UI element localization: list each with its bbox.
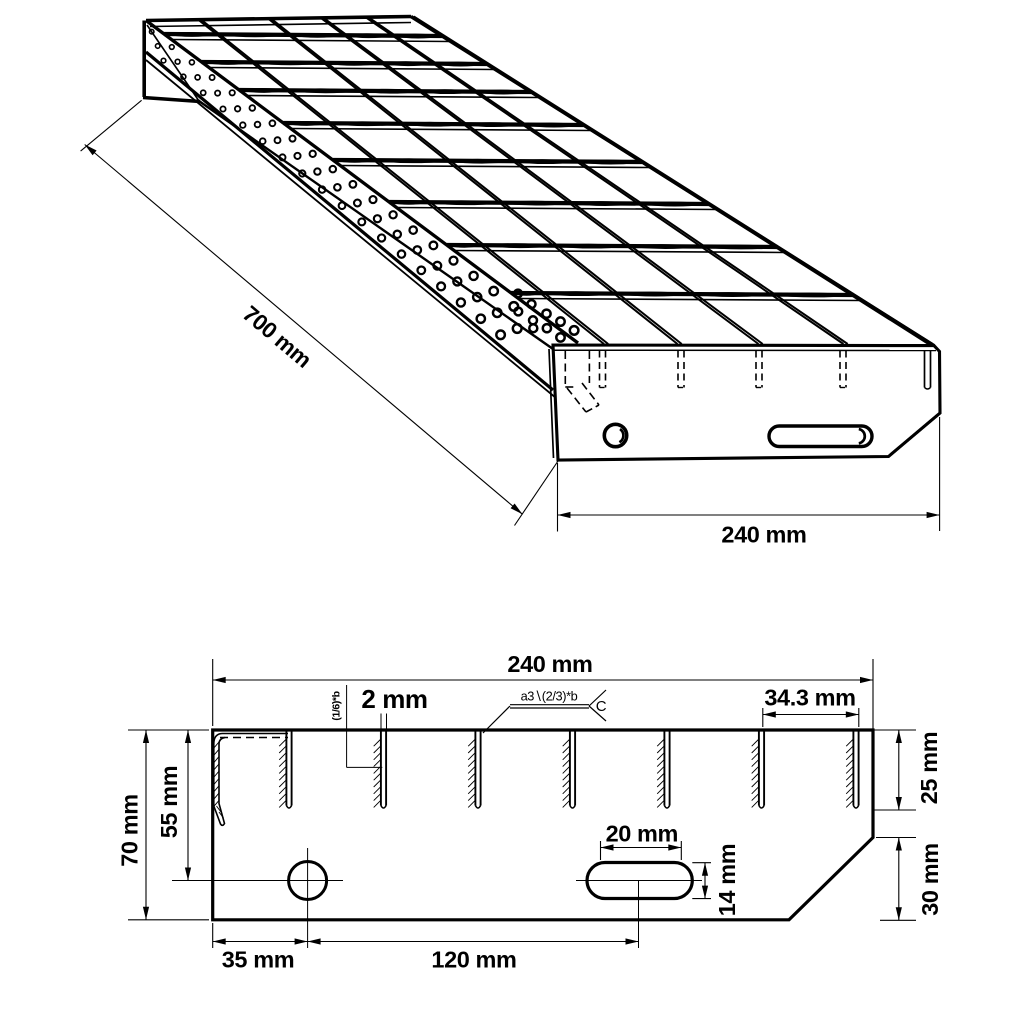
svg-text:240 mm: 240 mm bbox=[507, 651, 592, 677]
svg-text:a3∖(2/3)*b: a3∖(2/3)*b bbox=[521, 688, 578, 703]
svg-text:70 mm: 70 mm bbox=[117, 794, 143, 866]
svg-text:20 mm: 20 mm bbox=[606, 821, 678, 847]
svg-text:35 mm: 35 mm bbox=[222, 947, 294, 973]
svg-text:C: C bbox=[596, 698, 607, 715]
svg-text:55 mm: 55 mm bbox=[156, 766, 182, 838]
svg-text:(1/6)*b: (1/6)*b bbox=[330, 691, 342, 720]
svg-text:30 mm: 30 mm bbox=[917, 843, 943, 915]
svg-text:2 mm: 2 mm bbox=[361, 684, 427, 714]
svg-text:14 mm: 14 mm bbox=[714, 844, 740, 916]
svg-text:240 mm: 240 mm bbox=[721, 522, 806, 548]
svg-text:25 mm: 25 mm bbox=[916, 732, 942, 804]
svg-text:34.3 mm: 34.3 mm bbox=[764, 685, 855, 711]
svg-text:120 mm: 120 mm bbox=[431, 947, 516, 973]
